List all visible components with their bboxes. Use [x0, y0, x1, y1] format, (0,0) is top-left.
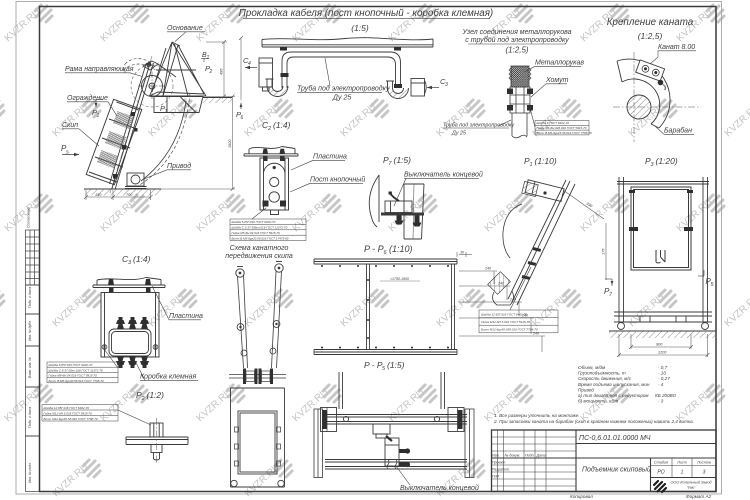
svg-text:Объем, м/дм: Объем, м/дм — [578, 365, 606, 370]
svg-text:1200: 1200 — [658, 351, 667, 355]
svg-text:Пластина: Пластина — [313, 154, 347, 161]
svg-text:- 0,7: - 0,7 — [658, 365, 668, 370]
svg-text:175: 175 — [602, 248, 606, 255]
svg-text:Шайба 12.65Г.016 ГОСТ 6402-70: Шайба 12.65Г.016 ГОСТ 6402-70 — [44, 406, 90, 410]
svg-text:Пост кнопочный: Пост кнопочный — [310, 176, 365, 184]
svg-text:Гайка М8-6Н.04.016 ГОСТ 5915-7: Гайка М8-6Н.04.016 ГОСТ 5915-70 — [49, 374, 98, 378]
svg-text:1: 1 — [207, 55, 210, 61]
svg-text:- 3: - 3 — [658, 399, 664, 404]
svg-text:(1:5): (1:5) — [351, 23, 369, 33]
svg-text:3: 3 — [703, 470, 706, 476]
svg-text:Основание: Основание — [167, 25, 203, 32]
svg-text:Болт М12-6gх45.058.016 ГОСТ 77: Болт М12-6gх45.058.016 ГОСТ 7798-70 — [481, 328, 538, 332]
svg-text:Копировал: Копировал — [570, 494, 593, 499]
svg-text:Барабан: Барабан — [664, 127, 692, 135]
svg-text:Время подъема и опускания, мин: Время подъема и опускания, мин — [578, 382, 650, 387]
svg-text:2: 2 — [209, 69, 213, 75]
svg-text:(1:10): (1:10) — [535, 156, 557, 166]
svg-text:Крепление каната: Крепление каната — [607, 17, 694, 28]
svg-text:1: 1 — [165, 109, 168, 115]
svg-text:КБ 200ВО: КБ 200ВО — [655, 393, 677, 398]
svg-text:(1:4): (1:4) — [133, 254, 151, 264]
svg-text:(1:10): (1:10) — [389, 244, 413, 254]
svg-text:Взам. инв. №: Взам. инв. № — [28, 357, 32, 378]
svg-text:Проект: Проект — [492, 461, 505, 465]
svg-text:Дата: Дата — [536, 454, 546, 458]
svg-text:P - P: P - P — [364, 244, 384, 254]
svg-text:а) тип двигателя с редуктором: а) тип двигателя с редуктором — [578, 393, 649, 398]
svg-text:Болт В.М6-6gх25.58.016 ГОСТ 77: Болт В.М6-6gх25.58.016 ГОСТ 7798-70 — [537, 131, 593, 135]
svg-text:Разработ.: Разработ. — [492, 468, 510, 472]
svg-text:Выключатель концевой: Выключатель концевой — [400, 484, 479, 492]
svg-text:Хомут: Хомут — [545, 77, 569, 84]
svg-text:900: 900 — [656, 343, 663, 347]
svg-text:2: 2 — [267, 126, 271, 132]
svg-text:Болт М12-6gх45.58.016 ГОСТ 779: Болт М12-6gх45.58.016 ГОСТ 7798-70 — [44, 417, 98, 421]
svg-text:(1:2,5): (1:2,5) — [638, 31, 663, 41]
svg-text:240: 240 — [497, 282, 504, 286]
svg-text:Инв. № подл.: Инв. № подл. — [28, 462, 32, 483]
svg-text:Изм.: Изм. — [492, 454, 500, 458]
svg-text:≈1750-1900: ≈1750-1900 — [390, 277, 409, 281]
svg-text:Канат 8.00: Канат 8.00 — [658, 44, 695, 51]
svg-text:Ду 25: Ду 25 — [332, 95, 351, 102]
svg-text:Металлорукав: Металлорукав — [535, 60, 584, 67]
svg-text:Подп.: Подп. — [525, 454, 535, 458]
svg-text:"РЖ": "РЖ" — [687, 486, 696, 490]
svg-text:Гайка М12-6Н.5.016 ГОСТ 5915-7: Гайка М12-6Н.5.016 ГОСТ 5915-70 — [44, 411, 93, 415]
svg-text:- 4: - 4 — [658, 382, 664, 387]
svg-text:1: 1 — [681, 470, 684, 476]
svg-text:Формат А2: Формат А2 — [686, 494, 712, 499]
svg-text:с трубой под электропроводку: с трубой под электропроводку — [465, 36, 569, 44]
svg-text:1: 1 — [97, 113, 100, 119]
svg-text:Инв. № дубл.: Инв. № дубл. — [28, 320, 32, 341]
svg-text:Гайка М5-6Н.04.016 ГОСТ 5915-7: Гайка М5-6Н.04.016 ГОСТ 5915-70 — [232, 231, 281, 235]
svg-text:Выключатель концевой: Выключатель концевой — [404, 171, 483, 179]
svg-text:Привод: Привод — [167, 162, 191, 170]
svg-text:передвижения скипа: передвижения скипа — [225, 252, 293, 260]
svg-text:- 0,27: - 0,27 — [658, 376, 670, 381]
svg-text:2. При запасовки каната на бар: 2. При запасовки каната на барабан (скип… — [493, 418, 694, 424]
svg-text:Труба под электропроводку: Труба под электропроводку — [297, 85, 390, 93]
svg-text:150: 150 — [95, 193, 102, 197]
svg-text:Стадия: Стадия — [654, 461, 668, 465]
svg-text:- 10: - 10 — [658, 371, 666, 376]
svg-text:Схема канатного: Схема канатного — [230, 245, 289, 252]
svg-text:Ду 25: Ду 25 — [451, 131, 467, 137]
svg-text:1: 1 — [530, 162, 533, 168]
svg-text:240: 240 — [509, 298, 516, 302]
svg-text:1600: 1600 — [228, 139, 232, 148]
svg-text:(1:2): (1:2) — [147, 390, 165, 400]
svg-text:30: 30 — [460, 251, 464, 255]
svg-text:№ докум.: № докум. — [505, 454, 521, 458]
svg-text:1. Все размеры уточнить на мон: 1. Все размеры уточнить на монтаже. — [494, 413, 580, 418]
svg-text:Узел соединения металлорукова: Узел соединения металлорукова — [462, 28, 572, 36]
svg-text:Болт В.М8-6gх30.58.016 ГОСТ 77: Болт В.М8-6gх30.58.016 ГОСТ 7798-70 — [49, 379, 105, 383]
svg-text:700: 700 — [126, 193, 133, 197]
svg-text:Согласовано: Согласовано — [27, 207, 31, 228]
svg-text:б) мощность, кВт: б) мощность, кВт — [578, 399, 618, 404]
svg-text:Прокладка кабеля (пост кнопочн: Прокладка кабеля (пост кнопочный - короб… — [239, 8, 493, 19]
svg-text:Подп. и дата: Подп. и дата — [28, 407, 32, 428]
svg-text:(1:4): (1:4) — [273, 120, 291, 130]
svg-text:2: 2 — [141, 396, 145, 402]
svg-text:6: 6 — [241, 115, 244, 121]
svg-text:Шайба 5.65Г.016 ГОСТ 6402-70: Шайба 5.65Г.016 ГОСТ 6402-70 — [232, 220, 276, 224]
svg-text:240: 240 — [484, 267, 491, 271]
svg-text:Подъемник скиповый: Подъемник скиповый — [582, 466, 651, 474]
svg-text:Скип: Скип — [62, 122, 78, 129]
svg-text:Гайка М6-6Н.026.016 ГОСТ 5915-: Гайка М6-6Н.026.016 ГОСТ 5915-70 — [537, 126, 587, 130]
svg-text:(1:5): (1:5) — [387, 360, 405, 370]
svg-text:Гайка М12-6Н.5.016 ГОСТ 5915-7: Гайка М12-6Н.5.016 ГОСТ 5915-70 — [481, 320, 530, 324]
svg-text:Коробка клемная: Коробка клемная — [140, 373, 196, 381]
svg-text:Шайба 8.65Г.016 ГОСТ 6402-70: Шайба 8.65Г.016 ГОСТ 6402-70 — [49, 363, 93, 367]
svg-text:ПС-0,6.01.01.0000 МЧ: ПС-0,6.01.01.0000 МЧ — [579, 435, 651, 442]
svg-text:Рама направляющая: Рама направляющая — [65, 66, 134, 73]
svg-text:3: 3 — [445, 82, 448, 88]
svg-text:ООО Копельный Завод: ООО Копельный Завод — [670, 481, 711, 485]
svg-text:495: 495 — [220, 68, 224, 75]
svg-text:Листов: Листов — [696, 461, 711, 465]
svg-text:Шайба С.8.37.06кп.016 ГОСТ 113: Шайба С.8.37.06кп.016 ГОСТ 11371-78 — [49, 368, 103, 372]
svg-text:Ограждение: Ограждение — [67, 94, 108, 102]
svg-text:Привод: Привод — [578, 387, 594, 392]
svg-text:Грузоподъемность, т: Грузоподъемность, т — [578, 371, 626, 376]
svg-text:РО: РО — [657, 470, 664, 476]
svg-text:Шайба С.5.37.508кп.016 ГОСТ 11: Шайба С.5.37.508кп.016 ГОСТ 11371-70 — [232, 226, 288, 230]
svg-text:(1:2,5): (1:2,5) — [505, 46, 528, 55]
svg-text:240: 240 — [521, 314, 528, 318]
svg-text:(1:5): (1:5) — [394, 155, 412, 165]
svg-text:240: 240 — [532, 332, 539, 336]
svg-text:Пластина: Пластина — [169, 313, 203, 320]
svg-text:P - P: P - P — [364, 360, 383, 370]
svg-text:ГИП: ГИП — [492, 475, 500, 479]
svg-text:Лист: Лист — [676, 461, 687, 465]
svg-text:Скорость движения, м/с: Скорость движения, м/с — [578, 376, 632, 381]
svg-text:Подп. и дата: Подп. и дата — [28, 287, 32, 308]
svg-text:Винт В.М5-6gх20.58.016 ГОСТ 17: Винт В.М5-6gх20.58.016 ГОСТ 17473-80 — [232, 236, 289, 240]
svg-text:Шайба 12.65Г.016 ГОСТ 6402-70: Шайба 12.65Г.016 ГОСТ 6402-70 — [481, 312, 527, 316]
svg-text:(1:20): (1:20) — [656, 156, 678, 166]
svg-text:Шайба 6 ГОСТ 6402-70: Шайба 6 ГОСТ 6402-70 — [537, 121, 570, 125]
